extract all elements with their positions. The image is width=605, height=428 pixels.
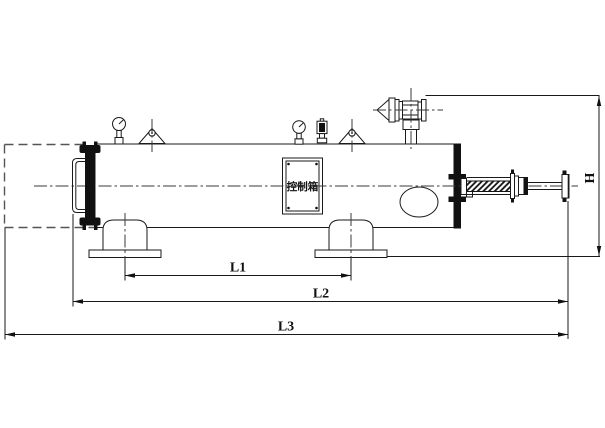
screw-rod [467, 181, 511, 192]
exhaust-valve-assembly [373, 88, 443, 149]
quick-open-closure [73, 142, 101, 231]
lifting-lug-right [339, 119, 365, 152]
manhole-ellipse [400, 187, 438, 217]
dimension-h-label: H [583, 172, 598, 183]
dimension-l1: L1 [125, 213, 351, 281]
dimension-l2: L2 [73, 201, 568, 339]
dimension-l1-label: L1 [230, 261, 246, 276]
engineering-drawing: 控制箱 [0, 0, 605, 428]
lifting-lug-left [139, 119, 165, 152]
dimension-l2-label: L2 [313, 287, 329, 302]
pressure-gauge-right [293, 121, 306, 145]
pressure-gauge-left [113, 118, 126, 145]
dimension-l3-label: L3 [278, 320, 294, 335]
closure-flange-column [85, 150, 95, 222]
drawing-canvas: 控制箱 [0, 0, 605, 428]
dimension-l3: L3 [5, 228, 568, 340]
vent-valve [317, 119, 327, 143]
